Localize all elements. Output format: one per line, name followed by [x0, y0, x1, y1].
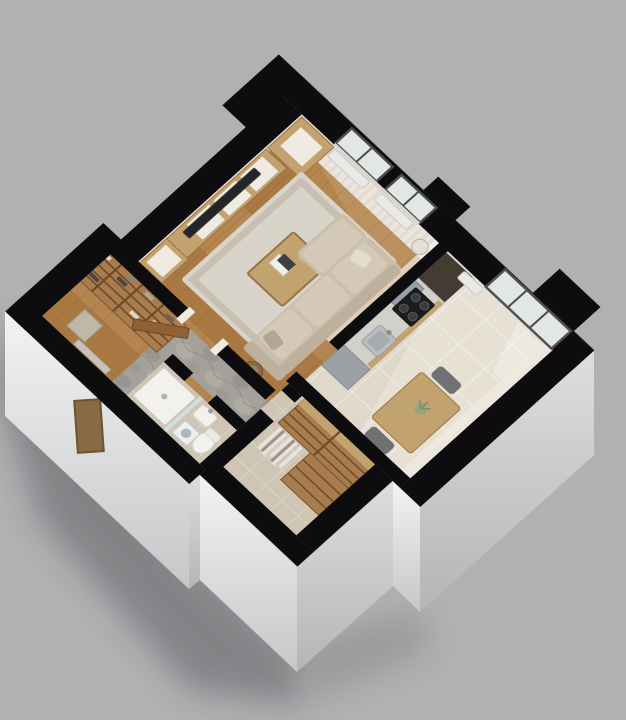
- apartment-3d-floor-plan: [0, 0, 626, 720]
- exterior-door-panel: [74, 399, 104, 453]
- south-step-face: [189, 475, 200, 589]
